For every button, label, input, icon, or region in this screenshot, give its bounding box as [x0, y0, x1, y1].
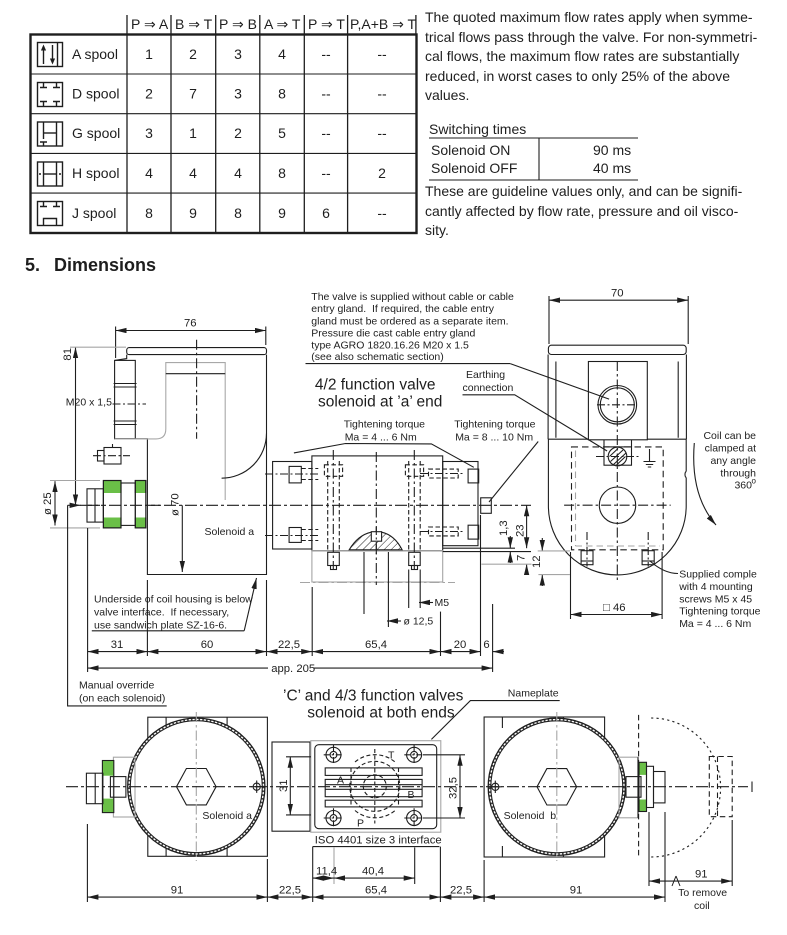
svg-text:M20 x 1,5: M20 x 1,5 [66, 397, 112, 409]
svg-text:91: 91 [695, 869, 708, 881]
svg-text:ø 70: ø 70 [170, 493, 182, 516]
svg-text:Coil can be: Coil can be [703, 430, 756, 442]
svg-text:ISO 4401 size 3 interface: ISO 4401 size 3 interface [315, 835, 442, 847]
svg-text:entry gland. If required, the: entry gland. If required, the cable entr… [311, 303, 494, 315]
svg-text:4/2 function valve: 4/2 function valve [315, 377, 436, 394]
svg-text:T: T [388, 750, 395, 762]
svg-text:Tightening torque: Tightening torque [679, 606, 760, 618]
svg-text:65,4: 65,4 [365, 885, 387, 897]
svg-text:31: 31 [111, 639, 124, 651]
svg-text:7: 7 [516, 555, 528, 561]
svg-text:Underside of coil housing is b: Underside of coil housing is below [94, 594, 253, 606]
svg-text:12: 12 [531, 555, 543, 568]
svg-text:clamped at: clamped at [705, 443, 756, 455]
svg-text:Ma = 4 ... 6 Nm: Ma = 4 ... 6 Nm [679, 618, 751, 630]
svg-text:Manual override: Manual override [79, 680, 154, 692]
svg-text:M5: M5 [435, 597, 450, 609]
svg-text:31: 31 [278, 779, 290, 792]
svg-text:Ma = 4 ... 6 Nm: Ma = 4 ... 6 Nm [345, 431, 417, 443]
svg-text:type AGRO 1820.16.26 M20 x 1.5: type AGRO 1820.16.26 M20 x 1.5 [311, 340, 469, 352]
svg-text:Supplied comple: Supplied comple [679, 569, 757, 581]
svg-text:360: 360 [734, 480, 752, 492]
svg-text:app. 205: app. 205 [271, 663, 315, 675]
svg-text:22,5: 22,5 [450, 885, 472, 897]
svg-text:o: o [752, 477, 757, 486]
svg-text:Solenoid a: Solenoid a [205, 526, 255, 538]
svg-text:any angle: any angle [710, 455, 756, 467]
svg-text:solenoid at ’a’ end: solenoid at ’a’ end [318, 393, 442, 410]
svg-text:To remove: To remove [678, 887, 727, 899]
svg-text:Tightening torque: Tightening torque [454, 419, 535, 431]
svg-text:6: 6 [483, 639, 489, 651]
svg-text:screws M5 x 45: screws M5 x 45 [679, 593, 752, 605]
svg-text:(on each solenoid): (on each solenoid) [79, 693, 165, 705]
svg-text:use sandwich plate SZ-16-6.: use sandwich plate SZ-16-6. [94, 620, 227, 632]
svg-text:23: 23 [515, 524, 527, 537]
svg-text:70: 70 [611, 288, 624, 300]
svg-text:’C’ and 4/3 function valves: ’C’ and 4/3 function valves [283, 688, 464, 705]
svg-text:40,4: 40,4 [362, 866, 384, 878]
svg-text:Solenoid a: Solenoid a [202, 810, 252, 822]
svg-text:A: A [337, 774, 344, 786]
svg-text:P: P [357, 817, 364, 829]
svg-text:22,5: 22,5 [279, 885, 301, 897]
svg-text:22,5: 22,5 [278, 639, 300, 651]
svg-text:Ma = 8 ... 10 Nm: Ma = 8 ... 10 Nm [455, 431, 533, 443]
svg-text:with 4 mounting: with 4 mounting [678, 581, 753, 593]
svg-text:Pressure die cast cable entry: Pressure die cast cable entry gland [311, 328, 475, 340]
svg-text:91: 91 [570, 885, 583, 897]
svg-text:□ 46: □ 46 [603, 602, 626, 614]
svg-text:solenoid at both ends: solenoid at both ends [307, 704, 455, 721]
svg-text:valve interface. If necessary: valve interface. If necessary, [94, 607, 229, 619]
svg-text:11,4: 11,4 [316, 866, 337, 878]
svg-text:(see also schematic section): (see also schematic section) [311, 351, 443, 363]
svg-text:Solenoid b: Solenoid b [504, 810, 557, 822]
svg-text:81: 81 [62, 348, 74, 361]
svg-text:ø 25: ø 25 [42, 492, 54, 515]
svg-text:Nameplate: Nameplate [508, 688, 559, 700]
svg-text:65,4: 65,4 [365, 639, 387, 651]
svg-text:coil: coil [694, 900, 710, 912]
svg-text:Tightening torque: Tightening torque [344, 419, 425, 431]
svg-text:91: 91 [171, 885, 184, 897]
svg-text:The valve is supplied without: The valve is supplied without cable or c… [311, 291, 514, 303]
svg-text:B: B [408, 789, 415, 801]
svg-text:ø 12,5: ø 12,5 [404, 616, 434, 628]
svg-text:1,3: 1,3 [498, 520, 510, 536]
svg-text:20: 20 [454, 639, 467, 651]
svg-text:Earthing: Earthing [466, 369, 505, 381]
svg-text:gland must be ordered as a sep: gland must be ordered as a separate item… [311, 316, 508, 328]
svg-text:76: 76 [184, 318, 197, 330]
svg-text:32,5: 32,5 [448, 777, 460, 799]
svg-text:60: 60 [201, 639, 214, 651]
svg-text:connection: connection [463, 382, 514, 394]
